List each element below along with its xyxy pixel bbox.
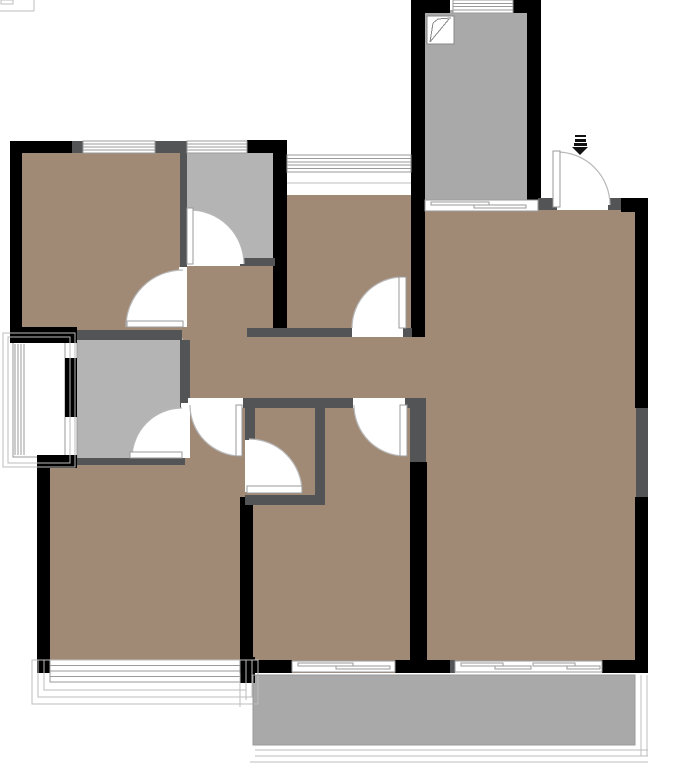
wall-segment bbox=[247, 328, 353, 337]
floor-plan-svg bbox=[0, 0, 680, 763]
wall-segment bbox=[240, 258, 275, 266]
wall-segment bbox=[635, 200, 648, 408]
room-living-dining bbox=[413, 208, 648, 668]
door-bathroom-leaf bbox=[130, 452, 182, 458]
door-entry-leaf bbox=[553, 151, 560, 207]
wall-segment bbox=[636, 408, 648, 497]
entry-arrow-icon bbox=[575, 139, 586, 142]
room-balcony-bottom bbox=[253, 675, 635, 745]
wall-segment bbox=[37, 455, 50, 673]
wall-segment bbox=[315, 408, 325, 495]
wall-segment bbox=[410, 398, 426, 462]
door-closet-leaf bbox=[247, 486, 302, 493]
wall-segment bbox=[411, 0, 425, 337]
wall-segment bbox=[527, 0, 541, 200]
sliding-door-panel bbox=[567, 666, 600, 669]
wall-segment bbox=[72, 141, 83, 153]
window bbox=[287, 155, 411, 172]
wall-segment bbox=[635, 497, 648, 662]
wall-segment bbox=[155, 141, 187, 153]
wall-segment bbox=[621, 198, 648, 212]
wall-segment bbox=[450, 660, 455, 673]
wall-segment bbox=[243, 398, 353, 408]
door-bedroom-center-leaf bbox=[400, 405, 407, 456]
door-entry-swing bbox=[557, 152, 610, 205]
sliding-door-panel bbox=[336, 666, 390, 669]
sill-outline bbox=[1, 0, 13, 4]
floor-plan bbox=[0, 0, 680, 763]
door-walkin-gray-leaf bbox=[187, 208, 193, 264]
door-threshold bbox=[181, 403, 190, 458]
wall-segment bbox=[180, 340, 190, 403]
sliding-door-panel bbox=[495, 666, 531, 669]
wall-segment bbox=[10, 141, 22, 343]
door-bedroom-left-leaf bbox=[236, 405, 242, 456]
sliding-door-panel bbox=[474, 205, 526, 208]
wall-segment bbox=[180, 152, 187, 267]
wall-segment bbox=[253, 660, 292, 673]
wall-segment bbox=[411, 0, 450, 13]
wall-segment bbox=[10, 141, 72, 153]
wall-segment bbox=[37, 455, 77, 468]
wall-segment bbox=[402, 328, 412, 337]
wall-segment bbox=[77, 458, 185, 465]
room-corridor bbox=[287, 328, 427, 398]
entry-arrow-icon bbox=[575, 135, 586, 137]
wall-segment bbox=[273, 140, 287, 337]
wall-segment bbox=[10, 327, 77, 343]
door-kitchen-leaf bbox=[399, 277, 406, 328]
wall-segment bbox=[245, 495, 325, 505]
door-threshold bbox=[352, 328, 403, 337]
door-master-bedroom-leaf bbox=[127, 321, 183, 327]
wall-segment bbox=[240, 497, 253, 663]
room-bedroom-left bbox=[37, 455, 253, 673]
wall-segment bbox=[512, 0, 538, 13]
wall-segment bbox=[77, 330, 182, 340]
entry-arrow-icon bbox=[572, 147, 588, 155]
wall-segment bbox=[395, 660, 450, 673]
entry-arrow-icon bbox=[574, 143, 587, 146]
wall-segment bbox=[245, 408, 255, 442]
wall-segment bbox=[410, 462, 427, 660]
